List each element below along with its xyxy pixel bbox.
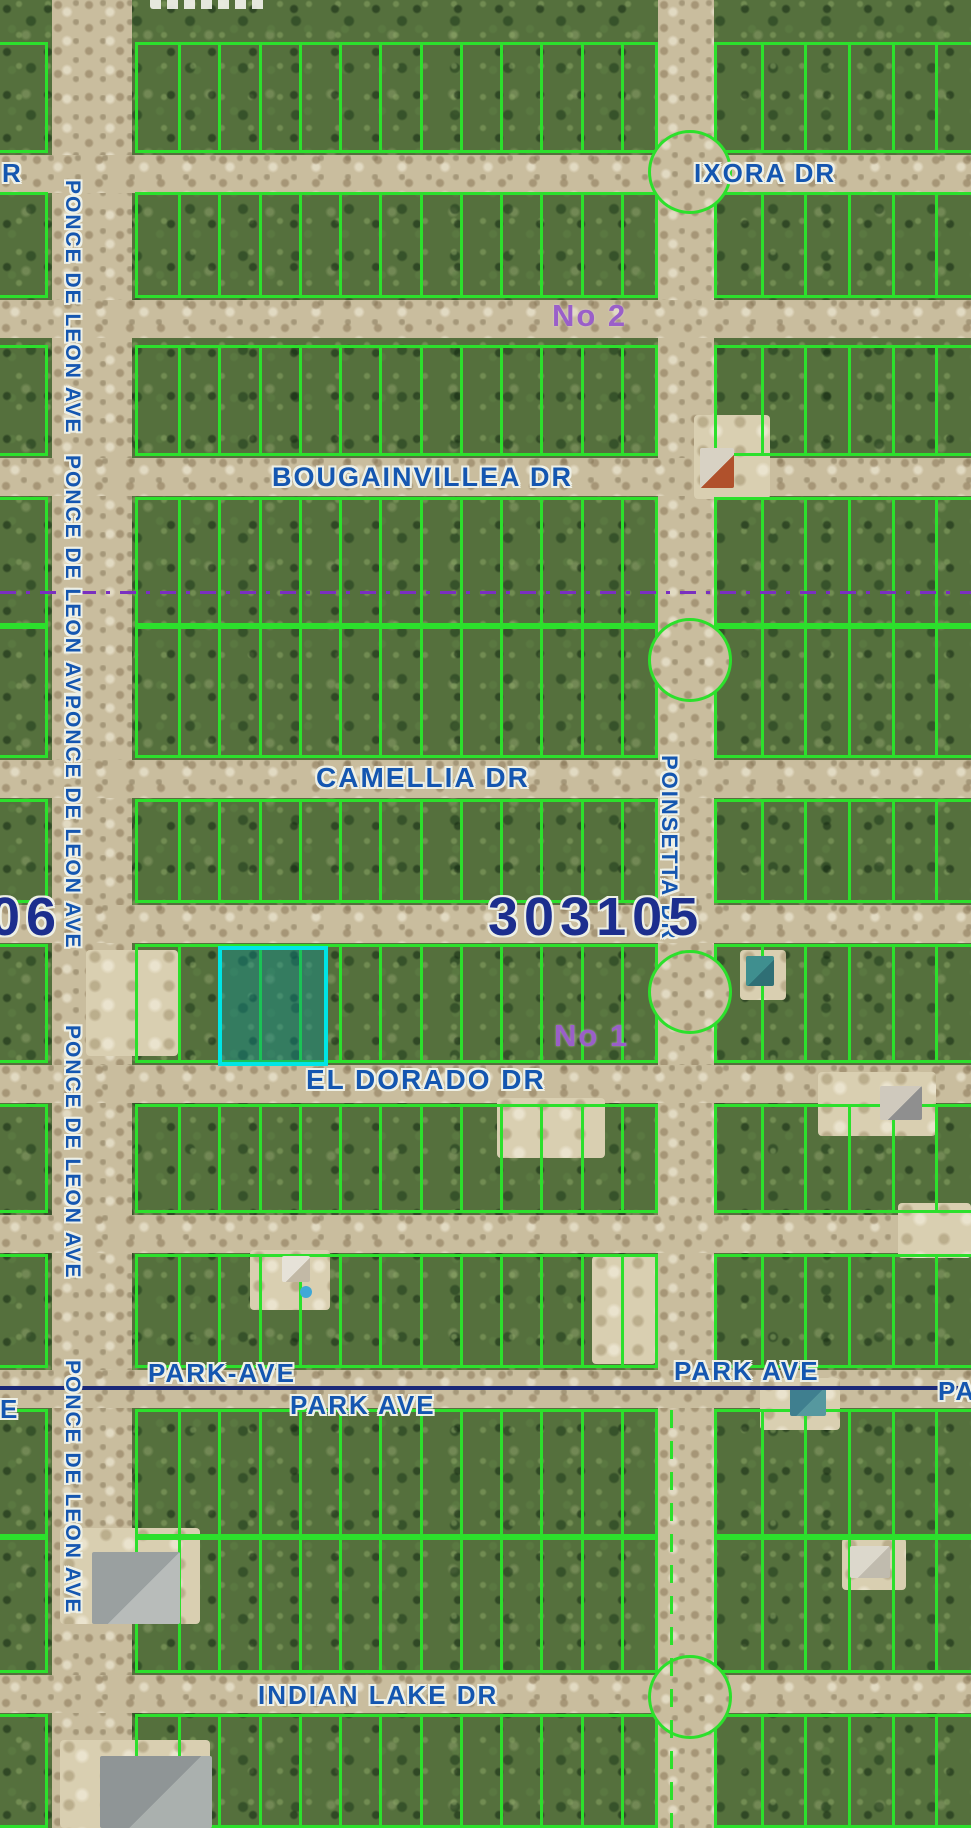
parcel-line [379,500,382,623]
parcel-line [178,500,181,623]
parcel-block-r11-s2[interactable] [714,1714,971,1828]
parcel-line [259,1540,262,1670]
parcel-line [892,195,895,295]
parcel-line [848,1107,851,1210]
parcel-line [935,195,938,295]
parcel-line [218,1412,221,1534]
parcel-line [299,802,302,900]
parcel-line [621,1412,624,1534]
parcel-line [540,947,543,1060]
street-label-ponce-3: PONCE DE LEON AVE [60,695,84,950]
parcel-line [339,1257,342,1365]
street-label-clipped-dr: R [2,158,23,189]
parcel-line [379,802,382,900]
parcel-line [339,629,342,755]
parcel-block-r4-s2[interactable] [714,626,971,758]
parcel-line [420,1257,423,1365]
parcel-line [218,629,221,755]
parcel-block-r10-s2[interactable] [714,1537,971,1673]
cul-de-sac-1 [648,618,732,702]
parcel-line [892,802,895,900]
parcel-line [420,1107,423,1210]
parcel-line [178,1257,181,1365]
parcel-line [892,947,895,1060]
parcel-line [540,348,543,453]
parcel-line [218,1717,221,1825]
parcel-line [500,1257,503,1365]
parcel-line [581,1412,584,1534]
parcel-line [848,629,851,755]
parcel-line [259,45,262,150]
parcel-line [218,45,221,150]
parcel-line [178,1412,181,1534]
parcel-line [540,500,543,623]
parcel-line [460,947,463,1060]
parcel-line [259,802,262,900]
parcel-line [621,348,624,453]
parcel-line [178,195,181,295]
poinsetta-dashed-line [670,1410,673,1828]
parcel-line [848,1412,851,1534]
parcel-line [218,195,221,295]
parcel-line [761,348,764,453]
road-horizontal-6 [0,1215,971,1253]
parcel-line [804,802,807,900]
parcel-block-r10-s1[interactable] [135,1537,658,1673]
parcel-block-r11-s1[interactable] [135,1714,658,1828]
parcel-line [379,1717,382,1825]
parcel-line [420,348,423,453]
parcel-line [299,348,302,453]
parcel-block-r11-s0[interactable] [0,1714,48,1828]
parcel-line [581,500,584,623]
parcel-line [581,1107,584,1210]
parcel-line [540,1412,543,1534]
parcel-line [540,1257,543,1365]
parcel-line [848,1717,851,1825]
street-label-park-ave-left: PARK-AVE [148,1358,296,1389]
parcel-line [892,629,895,755]
parcel-line [804,1717,807,1825]
parcel-line [299,1717,302,1825]
parcel-line [460,45,463,150]
parcel-line [581,45,584,150]
parcel-map[interactable]: IXORA DR BOUGAINVILLEA DR CAMELLIA DR EL… [0,0,971,1828]
parcel-line [540,195,543,295]
parcel-line [761,195,764,295]
parcel-line [420,195,423,295]
section-number: 303105 [488,886,704,948]
parcel-line [892,1540,895,1670]
parcel-line [804,629,807,755]
parcel-line [178,629,181,755]
parcel-block-r0-s0[interactable] [0,42,48,153]
parcel-block-r1-s1[interactable] [135,192,658,298]
parcel-line [500,45,503,150]
parcel-block-r0-s1[interactable] [135,42,658,153]
parcel-line [804,1107,807,1210]
street-label-park-ave-right: PARK AVE [674,1356,820,1387]
parcel-block-r2-s0[interactable] [0,345,48,456]
parcel-line [848,195,851,295]
parcel-line [848,45,851,150]
parcel-line [621,1540,624,1670]
parcel-line [621,195,624,295]
parcel-line [178,348,181,453]
parcel-line [379,348,382,453]
parcel-block-r4-s1[interactable] [135,626,658,758]
section-number-clipped: 06 [0,886,62,948]
parcel-line [935,348,938,453]
parcel-line [178,947,181,1060]
street-label-ponce-4: PONCE DE LEON AVE [60,1025,84,1280]
street-label-indian-lake: INDIAN LAKE DR [258,1680,498,1711]
parcel-line [621,1107,624,1210]
parcel-line [299,500,302,623]
street-label-clipped-ave: E [0,1394,19,1425]
parcel-line [892,1257,895,1365]
parcel-line [540,1540,543,1670]
parcel-line [218,500,221,623]
parcel-line [339,1540,342,1670]
house-1 [746,956,774,986]
parcel-line [259,1107,262,1210]
street-label-ponce-2: PONCE DE LEON AVE [60,455,84,710]
parcel-line [761,500,764,623]
parcel-line [500,1412,503,1534]
parcel-block-r5-s2[interactable] [714,799,971,903]
parcel-line [581,1540,584,1670]
parcel-line [581,348,584,453]
parcel-line [804,348,807,453]
house-0 [700,448,734,488]
parcel-line [178,45,181,150]
street-label-park-ave-center: PARK AVE [290,1390,436,1421]
parcel-line [460,629,463,755]
parcel-line [339,348,342,453]
parcel-line [761,802,764,900]
parcel-line [379,947,382,1060]
parcel-line [500,1717,503,1825]
parcel-block-r3-s0[interactable] [0,497,48,626]
parcel-block-r7-s0[interactable] [0,1104,48,1213]
parcel-line [761,1257,764,1365]
parcel-block-r1-s2[interactable] [714,192,971,298]
parcel-block-r3-s1[interactable] [135,497,658,626]
parcel-line [581,1717,584,1825]
parcel-line [935,629,938,755]
house-2 [880,1086,922,1120]
parcel-block-r0-s2[interactable] [714,42,971,153]
parcel-line [420,1412,423,1534]
parcel-line [500,1107,503,1210]
parcel-line [500,500,503,623]
parcel-line [935,947,938,1060]
pool [300,1286,312,1298]
parcel-line [621,1717,624,1825]
parcel-block-r7-s1[interactable] [135,1104,658,1213]
parcel-block-r1-s0[interactable] [0,192,48,298]
parcel-line [259,348,262,453]
parcel-line [500,348,503,453]
parcel-line [460,1540,463,1670]
parcel-line [178,802,181,900]
parcel-line [581,195,584,295]
house-7 [850,1546,890,1578]
parcel-block-r3-s2[interactable] [714,497,971,626]
parcel-line [420,1540,423,1670]
unit-label-no1: No 1 [554,1018,629,1054]
parcel-line [420,500,423,623]
parcel-line [892,348,895,453]
parcel-line [420,1717,423,1825]
parcel-line [804,1257,807,1365]
parcel-line [581,1257,584,1365]
section-boundary-dashed-line [0,591,971,594]
parcel-line [299,1412,302,1534]
parcel-line [848,1257,851,1365]
park-ave-line [0,1386,971,1390]
parcel-line [500,629,503,755]
street-label-ponce-5: PONCE DE LEON AVE [60,1360,84,1615]
parcel-line [339,500,342,623]
parcel-line [339,1717,342,1825]
parcel-line [935,45,938,150]
parcel-line [299,195,302,295]
parcel-line [460,195,463,295]
parcel-line [540,45,543,150]
parcel-line [339,45,342,150]
parcel-line [420,802,423,900]
parcel-line [420,947,423,1060]
highlighted-parcel[interactable] [218,946,328,1066]
parcel-line [804,1412,807,1534]
parcel-line [621,629,624,755]
parcel-line [500,1540,503,1670]
parcel-line [804,500,807,623]
parcel-line [892,45,895,150]
parcel-line [892,1717,895,1825]
house-6 [100,1756,212,1828]
parcel-line [621,500,624,623]
parcel-line [935,1717,938,1825]
parcel-line [540,1717,543,1825]
parcel-block-r8-s2[interactable] [714,1254,971,1368]
parcel-line [761,629,764,755]
parcel-block-r2-s2[interactable] [714,345,971,456]
parcel-block-r7-s2[interactable] [714,1104,971,1213]
parcel-block-r2-s1[interactable] [135,345,658,456]
parcel-line [804,1540,807,1670]
parcel-line [935,1107,938,1210]
parcel-line [339,1107,342,1210]
parcel-line [935,1540,938,1670]
parcel-line [259,1412,262,1534]
parcel-block-r8-s0[interactable] [0,1254,48,1368]
cul-de-sac-2 [648,950,732,1034]
parcel-line [218,1540,221,1670]
parcel-line [935,1412,938,1534]
parcel-line [299,45,302,150]
parcel-block-r4-s0[interactable] [0,626,48,758]
parcel-line [848,348,851,453]
parcel-block-r10-s0[interactable] [0,1537,48,1673]
parcel-line [892,1107,895,1210]
parcel-line [761,1540,764,1670]
parcel-line [420,629,423,755]
parcel-line [379,45,382,150]
parcel-line [379,195,382,295]
parcel-line [892,500,895,623]
parcel-line [379,629,382,755]
parcel-line [621,45,624,150]
road-horizontal-1 [0,300,971,338]
parcel-line [460,802,463,900]
parcel-line [935,802,938,900]
parcel-line [379,1107,382,1210]
parcel-line [804,45,807,150]
street-label-ponce-1: PONCE DE LEON AVE [60,180,84,435]
house-4 [790,1386,826,1416]
street-label-el-dorado: EL DORADO DR [306,1064,546,1096]
parcel-line [178,1107,181,1210]
parcel-line [460,1257,463,1365]
parcel-line [460,500,463,623]
parcel-line [460,1107,463,1210]
parcel-line [379,1412,382,1534]
parcel-line [218,1257,221,1365]
parcel-line [420,45,423,150]
house-5 [92,1552,180,1624]
parcel-line [935,500,938,623]
parcel-line [259,1257,262,1365]
parcel-line [848,947,851,1060]
parcel-line [848,802,851,900]
parcel-line [339,195,342,295]
street-label-camellia: CAMELLIA DR [316,762,530,794]
parcel-line [299,629,302,755]
parcel-line [761,1107,764,1210]
parcel-line [259,500,262,623]
parcel-line [460,1412,463,1534]
parcel-line [935,1257,938,1365]
parcel-line [500,947,503,1060]
parcel-line [299,1107,302,1210]
house-3 [282,1256,310,1282]
parcel-line [761,1412,764,1534]
road-horizontal-4 [0,905,971,943]
parcel-line [804,195,807,295]
parcel-line [379,1540,382,1670]
street-label-ixora: IXORA DR [694,158,836,189]
unit-label-no2: No 2 [552,298,627,334]
cul-de-sac-3 [648,1655,732,1739]
parcel-line [540,1107,543,1210]
parcel-line [339,802,342,900]
parcel-line [218,1107,221,1210]
parcel-line [259,1717,262,1825]
parcel-block-r9-s0[interactable] [0,1409,48,1537]
parcel-line [892,1412,895,1534]
parcel-line [218,802,221,900]
parcel-block-r6-s0[interactable] [0,944,48,1063]
parcel-line [259,629,262,755]
parcel-line [621,1257,624,1365]
street-label-bougainvillea: BOUGAINVILLEA DR [272,462,573,493]
parcel-line [761,1717,764,1825]
parcel-line [379,1257,382,1365]
parcel-line [848,500,851,623]
parcel-line [259,195,262,295]
parcel-line [500,195,503,295]
parcel-line [218,348,221,453]
parcel-line [339,947,342,1060]
parcel-line [339,1412,342,1534]
parcel-block-r9-s1[interactable] [135,1409,658,1537]
clipped-street-label-top [150,0,268,9]
parcel-line [460,1717,463,1825]
parcel-block-r8-s1[interactable] [135,1254,658,1368]
parcel-line [761,45,764,150]
street-label-park-ave-clipped: PA [938,1376,971,1407]
parcel-line [460,348,463,453]
parcel-line [540,629,543,755]
parcel-line [299,1540,302,1670]
parcel-block-r9-s2[interactable] [714,1409,971,1537]
parcel-line [581,629,584,755]
parcel-line [804,947,807,1060]
